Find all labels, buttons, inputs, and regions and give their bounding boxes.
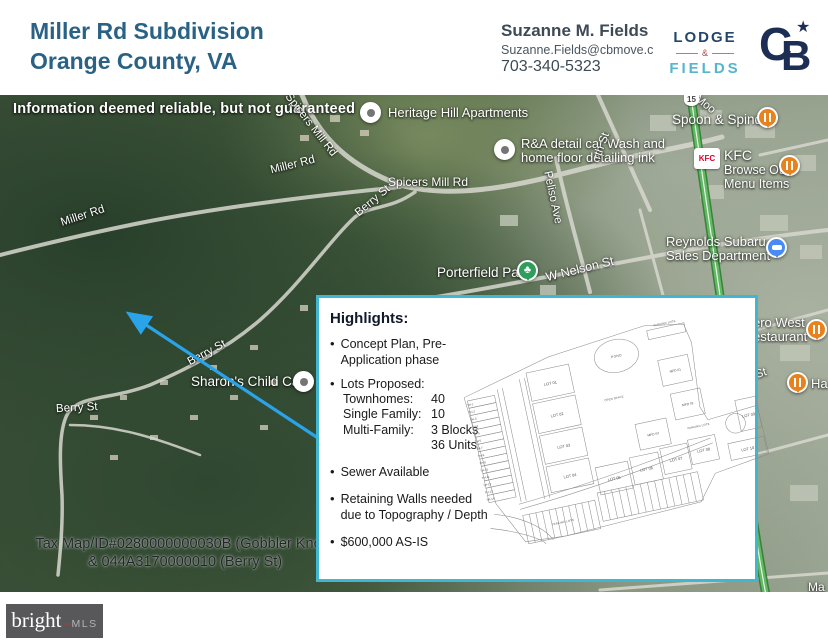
carwash-map-pin-icon xyxy=(494,139,515,160)
plan-mfd-03: MFD 03 xyxy=(647,431,659,437)
plan-lot-09: LOT 09 xyxy=(742,411,756,419)
plan-lot-04: LOT 04 xyxy=(563,472,578,480)
svg-text:TH-5: TH-5 xyxy=(473,431,480,436)
poi-kfc-label: KFC xyxy=(724,147,752,163)
heritage-map-pin-icon xyxy=(360,102,381,123)
svg-text:TH-14: TH-14 xyxy=(486,496,495,502)
plan-townhome-column: TH-1TH-2TH-3TH-4TH-5TH-6TH-7TH-8TH-9TH-1… xyxy=(465,395,516,503)
svg-text:TH-7: TH-7 xyxy=(476,446,483,451)
fields-wordmark: FIELDS xyxy=(662,60,748,77)
tax-line2: & 044A3170000010 (Berry St) xyxy=(18,553,352,571)
svg-text:TH-13: TH-13 xyxy=(484,489,493,495)
plan-lot-06: LOT 06 xyxy=(640,465,655,473)
plan-parking2-label: PARKING LOTS xyxy=(687,422,710,431)
tax-map-id-text: Tax Map/ID#0280000000030B (Gobbler Knob)… xyxy=(18,535,352,571)
bullet-3-text: Sewer Available xyxy=(341,465,430,480)
logo-divider: & xyxy=(662,48,748,58)
reynolds-line1: Reynolds Subaru xyxy=(666,235,762,249)
bullet-5-text: $600,000 AS-IS xyxy=(341,535,429,550)
plan-lot-10: LOT 10 xyxy=(741,445,756,453)
poi-porterfield-label: Porterfield Park xyxy=(437,265,530,280)
poi-reynolds-label: Reynolds Subaru Sales Department xyxy=(666,235,762,263)
poi-ha-partial-label: Ha xyxy=(811,376,828,391)
plan-lot-07: LOT 07 xyxy=(669,455,683,463)
plan-lot-03: LOT 03 xyxy=(557,442,572,450)
flyer-header: Miller Rd Subdivision Orange County, VA … xyxy=(0,0,828,95)
plan-lot-02: LOT 02 xyxy=(550,411,564,419)
reynolds-line2: Sales Department xyxy=(666,249,762,263)
svg-text:TH-4: TH-4 xyxy=(471,424,478,429)
lots-row-single-label: Single Family: xyxy=(343,407,427,422)
route-15-shield-icon: 15 xyxy=(684,95,699,106)
agent-name: Suzanne M. Fields xyxy=(501,21,653,41)
page-title: Miller Rd Subdivision Orange County, VA xyxy=(30,16,264,76)
agent-info: Suzanne M. Fields Suzanne.Fields@cbmove.… xyxy=(501,21,653,76)
ampersand: & xyxy=(702,48,708,58)
bright-wordmark: bright xyxy=(11,608,61,633)
west-dining-pin-icon xyxy=(806,319,827,340)
lodge-fields-logo: LODGE & FIELDS xyxy=(662,29,748,77)
west-line1: ero West xyxy=(753,316,807,330)
highlight-bullet-5: $600,000 AS-IS xyxy=(330,535,498,550)
plan-parking1-label: PARKING LOTS xyxy=(653,319,676,328)
highlights-panel: Highlights: Concept Plan, Pre-Applicatio… xyxy=(316,295,758,582)
mls-wordmark: MLS xyxy=(72,618,98,630)
road-label-berry-c: Berry St xyxy=(56,401,98,415)
plan-lot-08: LOT 08 xyxy=(697,446,712,454)
svg-text:TH-10: TH-10 xyxy=(480,467,489,473)
title-line-2: Orange County, VA xyxy=(30,46,264,76)
reynolds-car-pin-icon xyxy=(766,237,787,258)
svg-text:TH-1: TH-1 xyxy=(467,402,474,407)
poi-west-restaurant-label: ero West estaurant xyxy=(753,316,807,344)
kfc-logo: KFC xyxy=(694,148,720,169)
coldwell-banker-cb-logo: C B ★ xyxy=(757,14,817,80)
plan-boundary xyxy=(457,306,777,551)
bright-mls-logo: bright ™ MLS xyxy=(6,604,103,638)
road-label-spicers: Spicers Mill Rd xyxy=(388,175,468,189)
bullet-4-line1: Retaining Walls needed xyxy=(341,492,473,506)
plan-lot-01: LOT 01 xyxy=(543,379,557,387)
porterfield-park-pin-icon: ♣ xyxy=(517,260,538,281)
lots-row-multi-label: Multi-Family: xyxy=(343,423,427,438)
poi-heritage-label: Heritage Hill Apartments xyxy=(388,105,528,120)
lots-row-townhomes-label: Townhomes: xyxy=(343,392,427,407)
svg-text:TH-9: TH-9 xyxy=(479,460,486,465)
agent-email: Suzanne.Fields@cbmove.c xyxy=(501,43,653,57)
plan-strip-row-a xyxy=(604,473,696,520)
svg-text:TH-2: TH-2 xyxy=(468,409,475,414)
flyer-footer: bright ™ MLS xyxy=(0,592,828,640)
plan-mfd-01: MFD 01 xyxy=(669,367,681,373)
svg-text:TH-6: TH-6 xyxy=(474,438,481,443)
spoon-spindle-dining-pin-icon xyxy=(757,107,778,128)
west-line2: estaurant xyxy=(753,330,807,344)
svg-text:TH-11: TH-11 xyxy=(481,475,490,481)
lodge-wordmark: LODGE xyxy=(662,29,748,46)
svg-text:TH-3: TH-3 xyxy=(470,417,477,422)
plan-open-space-label: OPEN SPACE xyxy=(604,394,624,402)
trademark-symbol: ™ xyxy=(64,623,70,629)
cb-star-icon: ★ xyxy=(796,19,810,36)
plan-mfd-02: MFD 02 xyxy=(682,401,694,407)
plan-parking3-label: PARKING LOTS xyxy=(552,518,575,527)
bullet-2-title: Lots Proposed: xyxy=(341,377,425,392)
poi-ma-partial-label: Ma xyxy=(808,580,825,592)
kfc-dining-pin-icon xyxy=(779,155,800,176)
cb-letter-b: B xyxy=(781,32,811,79)
concept-plan-drawing: POND OPEN SPACE PARKING LOTS PARKING LOT… xyxy=(465,320,761,527)
title-line-1: Miller Rd Subdivision xyxy=(30,16,264,46)
tax-line1: Tax Map/ID#0280000000030B (Gobbler Knob) xyxy=(18,535,352,553)
ha-dining-pin-icon xyxy=(787,372,808,393)
svg-text:TH-8: TH-8 xyxy=(478,453,485,458)
sharons-pin-icon xyxy=(293,371,314,392)
kfc-menu-line2: Menu Items xyxy=(724,177,790,191)
agent-phone: 703-340-5323 xyxy=(501,58,653,76)
plan-pond-label: POND xyxy=(611,353,623,359)
mls-flyer: { "colors":{ "title_blue":"#2a6285","lod… xyxy=(0,0,828,640)
